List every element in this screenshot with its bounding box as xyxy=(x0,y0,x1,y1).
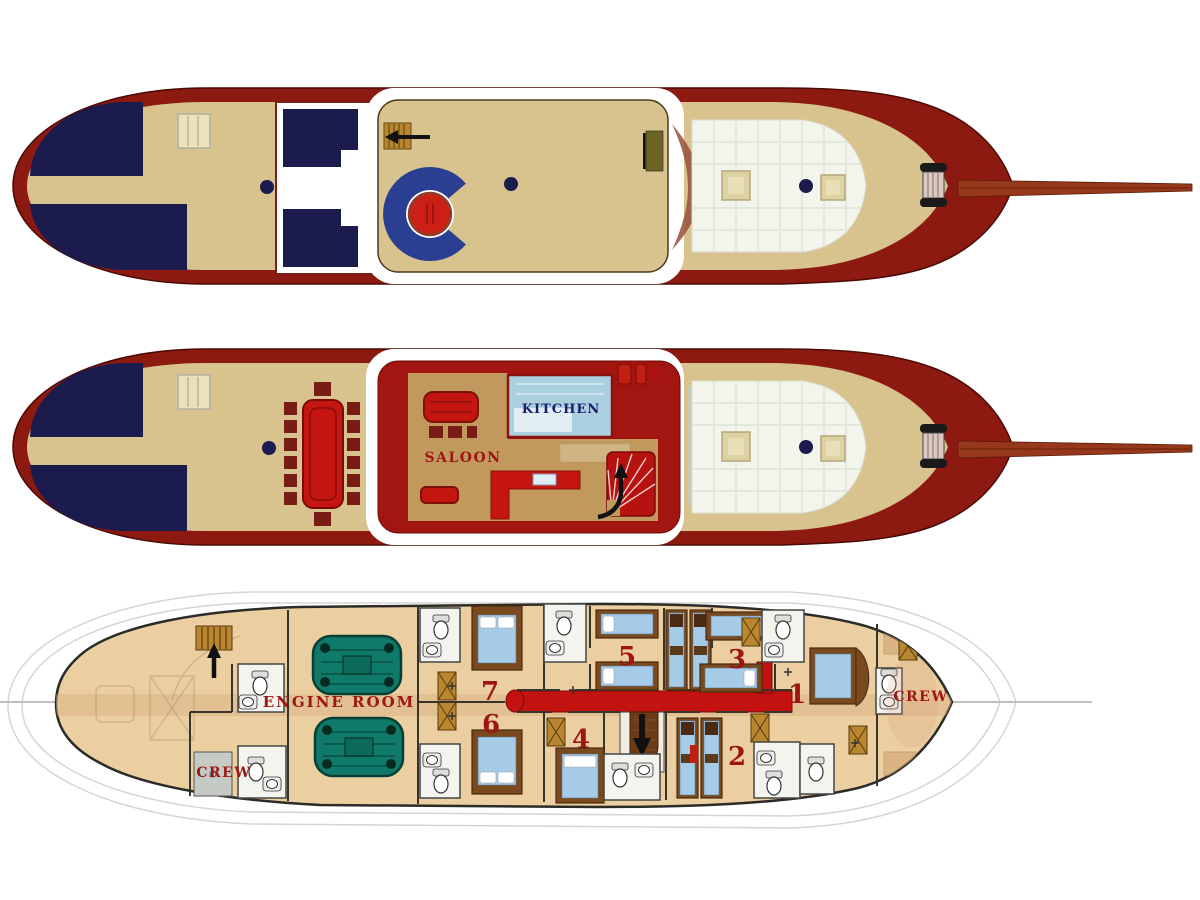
sink-icon xyxy=(239,695,257,709)
sink-icon xyxy=(546,641,564,655)
toilet-icon xyxy=(556,611,572,635)
toilet-icon xyxy=(766,771,782,795)
dining-table xyxy=(303,400,343,508)
sink-icon xyxy=(263,777,281,791)
sink-icon xyxy=(765,643,783,657)
wardrobe-icon xyxy=(742,618,760,646)
deck-hatch-inner xyxy=(826,180,840,195)
toilet-icon xyxy=(775,615,791,639)
toilet-icon xyxy=(252,671,268,695)
deck-hatch xyxy=(178,114,210,148)
deck-hatch-inner xyxy=(728,177,744,194)
wardrobe-icon xyxy=(849,726,867,754)
kitchen-area: KITCHEN xyxy=(508,375,612,437)
corridor xyxy=(514,691,792,712)
deck-hatch xyxy=(178,375,210,409)
cabin1-bed xyxy=(810,648,869,706)
bow-sunpad-lower xyxy=(30,204,187,270)
deck-plans-drawing: KITCHEN SALOON xyxy=(0,0,1200,900)
mast-base xyxy=(260,180,274,194)
sink-icon xyxy=(757,751,775,765)
yacht-deck-plans-page: KITCHEN SALOON xyxy=(0,0,1200,900)
midship-skylight xyxy=(276,102,376,274)
helm-console xyxy=(643,131,663,171)
foredeck-cushions xyxy=(692,120,866,252)
deck-hatch-inner xyxy=(826,441,840,456)
saloon-sofa-top xyxy=(424,392,478,422)
cabin-number: 2 xyxy=(728,742,746,772)
cabin7-bed xyxy=(472,606,522,670)
sun-deck-deckhouse xyxy=(366,88,684,284)
cabin-number: 5 xyxy=(618,642,636,672)
sink-icon xyxy=(423,753,441,767)
main-deck-plan: KITCHEN SALOON xyxy=(13,349,1192,545)
deckhouse-mast-dot xyxy=(504,177,518,191)
crew-aft-label: CREW xyxy=(196,765,251,781)
toilet-icon xyxy=(808,757,824,781)
bunk-bed xyxy=(666,610,687,690)
foremast-dot xyxy=(799,440,813,454)
saloon-cushion xyxy=(448,426,462,438)
cabin5-bed xyxy=(596,610,658,638)
helm-seating xyxy=(396,180,456,248)
saloon-sofa-small xyxy=(421,487,458,503)
mast-base xyxy=(262,441,276,455)
cabin-number: 3 xyxy=(728,645,746,675)
bow-sunpad-upper xyxy=(30,102,143,176)
bar-sink xyxy=(533,474,556,485)
cabin2-locker xyxy=(690,745,698,763)
foredeck-cushions xyxy=(692,381,866,513)
crew-fore-label: CREW xyxy=(893,689,948,705)
bow-sunpad-upper xyxy=(30,363,143,437)
wardrobe-icon xyxy=(751,714,769,742)
lower-deck-plan: CREW ENGINE ROOM 7 6 xyxy=(0,592,1092,828)
saloon-cushion xyxy=(467,426,477,438)
corridor-end xyxy=(506,690,524,712)
anchor-windlass xyxy=(920,163,947,207)
cabin4-bed xyxy=(556,748,604,803)
toilet-icon xyxy=(433,769,449,793)
spiral-staircase xyxy=(598,452,655,517)
engine-starboard xyxy=(315,718,403,776)
bow-sunpad-lower xyxy=(30,465,187,531)
toilet-icon xyxy=(433,615,449,639)
sink-icon xyxy=(423,643,441,657)
saloon-deckhouse: KITCHEN SALOON xyxy=(366,349,684,545)
sun-deck-plan xyxy=(13,88,1192,284)
kitchen-label: KITCHEN xyxy=(522,402,600,417)
bunk-bed xyxy=(701,718,722,798)
cabin-number: 6 xyxy=(482,710,500,740)
saloon-label: SALOON xyxy=(424,450,501,466)
toilet-icon xyxy=(612,763,628,787)
cabin-number: 1 xyxy=(788,680,806,710)
anchor-windlass xyxy=(920,424,947,468)
foremast-dot xyxy=(799,179,813,193)
deck-hatch-inner xyxy=(728,438,744,455)
engine-room-label: ENGINE ROOM xyxy=(263,693,416,711)
wardrobe-icon xyxy=(547,718,565,746)
saloon-cushion xyxy=(429,426,443,438)
sink-icon xyxy=(635,763,653,777)
engine-port xyxy=(313,636,401,694)
